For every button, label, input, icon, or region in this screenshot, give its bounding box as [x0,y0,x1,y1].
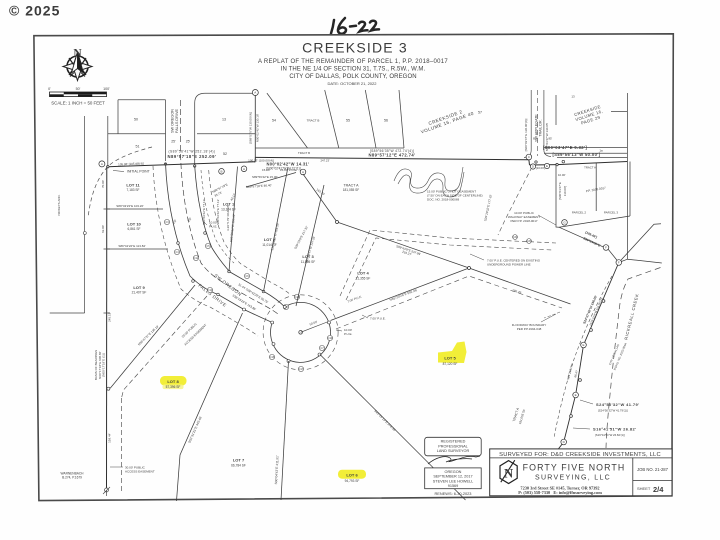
svg-text:87,120 SF: 87,120 SF [443,362,458,366]
svg-text:S16°41'51"W 26.82': S16°41'51"W 26.82' [593,427,637,432]
svg-text:TRACT A: TRACT A [584,166,596,170]
svg-text:13: 13 [222,118,226,122]
svg-text:85': 85' [549,137,553,141]
svg-text:LOT 1: LOT 1 [223,202,235,207]
svg-text:C13: C13 [208,288,213,292]
svg-text:S24°50'32"W 41.79': S24°50'32"W 41.79' [596,402,640,407]
svg-text:[10.00']: [10.00'] [536,166,545,170]
svg-text:E: E [575,393,577,397]
svg-text:LOT 7: LOT 7 [233,458,245,463]
svg-text:S89°56'42"E 15.00': S89°56'42"E 15.00' [252,175,278,179]
svg-text:S89°43'23"E 103.20': S89°43'23"E 103.20' [116,204,144,208]
svg-text:A: A [302,170,304,174]
svg-text:NICKEYS ADD.: NICKEYS ADD. [57,194,61,215]
svg-text:F: F [618,261,620,265]
svg-text:54: 54 [272,119,276,123]
svg-text:57,396 SF: 57,396 SF [166,385,181,389]
svg-text:REGISTERED: REGISTERED [441,440,466,444]
svg-text:159.44': 159.44' [108,433,112,443]
svg-text:LOT 3: LOT 3 [302,254,314,259]
svg-text:LOT 10: LOT 10 [127,222,141,227]
svg-text:[S89°57'6"W 130.00'(4)]: [S89°57'6"W 130.00'(4)] [249,112,253,144]
svg-text:LOT 2: LOT 2 [264,237,276,242]
svg-text:CITY OF DALLAS, POLK COUNTY, O: CITY OF DALLAS, POLK COUNTY, OREGON [289,74,416,80]
svg-text:21,355 SF: 21,355 SF [356,277,371,281]
svg-text:57: 57 [478,111,482,115]
svg-text:6,861 SF: 6,861 SF [128,227,141,231]
svg-text:2/4: 2/4 [653,485,664,494]
svg-text:P.U.E.: P.U.E. [209,225,217,229]
svg-text:C33: C33 [527,240,532,243]
svg-text:PER P.P.1994-048: PER P.P.1994-048 [517,327,542,331]
svg-text:LAND SURVEYOR: LAND SURVEYOR [437,449,470,453]
svg-text:C12: C12 [194,256,199,260]
svg-text:C14: C14 [295,295,300,299]
svg-text:7,183 SF: 7,183 SF [127,188,140,192]
svg-text:N: N [504,467,513,481]
svg-text:56: 56 [384,119,388,123]
svg-text:C6: C6 [245,274,249,278]
svg-text:[S24°50'32"W 41.79'(1)]: [S24°50'32"W 41.79'(1)] [598,409,628,413]
svg-text:PARCEL 3: PARCEL 3 [604,211,619,215]
svg-text:25': 25' [171,140,176,144]
svg-text:94,793 SF: 94,793 SF [345,479,360,483]
svg-text:TRACT B: TRACT B [307,119,320,123]
svg-text:25': 25' [186,140,191,144]
svg-text:15.06': 15.06' [262,168,271,172]
svg-text:SURVEYED FOR: D&D CREEKSIDE I: SURVEYED FOR: D&D CREEKSIDE INVESTMENTS,… [499,452,661,458]
svg-text:63.00': 63.00' [101,225,105,234]
svg-text:85': 85' [533,137,537,141]
svg-text:UNDERGROUND POWER LINE: UNDERGROUND POWER LINE [487,263,531,267]
svg-text:PROFESSIONAL: PROFESSIONAL [438,444,468,448]
svg-text:© 2025: © 2025 [9,3,60,19]
svg-text:SURVEYING, LLC: SURVEYING, LLC [535,475,611,482]
svg-text:A REPLAT OF THE REMAINDER OF P: A REPLAT OF THE REMAINDER OF PARCEL 1, P… [258,59,448,65]
svg-text:100': 100' [103,87,110,91]
svg-text:DATE: OCTOBER 21, 2022: DATE: OCTOBER 21, 2022 [328,81,378,86]
svg-text:P: (503) 558-7330 E: info@ff: P: (503) 558-7330 E: info@ffnsurveying.c… [518,490,602,495]
svg-text:STEVEN LEE HOWELL: STEVEN LEE HOWELL [433,479,474,483]
svg-text:C17: C17 [299,367,304,371]
svg-text:P.U.E.: P.U.E. [344,332,352,336]
svg-text:10.00': 10.00' [558,173,566,177]
svg-text:15.00' P.U.E.: 15.00' P.U.E. [280,168,297,172]
svg-text:LOT 9: LOT 9 [133,285,145,290]
svg-text:LOT 8: LOT 8 [167,379,179,384]
svg-text:WARNENBACHB.274, P.1679: WARNENBACHB.274, P.1679 [61,472,85,480]
svg-text:TRACT B: TRACT B [298,151,310,155]
svg-text:50': 50' [76,87,81,91]
svg-text:A: A [243,167,245,171]
svg-text:IN THE NE 1/4 OF SECTION 31, T: IN THE NE 1/4 OF SECTION 31, T.7S., R.5W… [281,67,426,73]
svg-text:7.00' P.U.E.: 7.00' P.U.E. [370,317,386,321]
svg-text:N00°03'47"W 130.05': N00°03'47"W 130.05' [545,122,549,151]
svg-text:JOB NO. 21-287: JOB NO. 21-287 [637,467,669,472]
svg-text:C4: C4 [175,250,179,254]
svg-text:21,407 SF: 21,407 SF [132,291,147,295]
svg-text:FORTY FIVE NORTH: FORTY FIVE NORTH [523,463,626,473]
svg-text:N00°02'42"W 130.18': N00°02'42"W 130.18' [256,113,260,142]
svg-text:N: N [73,48,82,60]
svg-text:[S16°41'51"W 26.82'(1)]: [S16°41'51"W 26.82'(1)] [595,433,625,437]
svg-text:F: F [605,246,607,250]
svg-text:E: E [582,343,584,347]
svg-text:50: 50 [134,118,138,122]
svg-text:91569: 91569 [448,484,459,488]
svg-text:E: E [546,164,548,168]
svg-text:55: 55 [346,119,350,123]
svg-text:51: 51 [136,145,140,149]
svg-text:CREEKSIDE 3: CREEKSIDE 3 [302,40,408,56]
svg-text:(S89°56'41"W 252.18'(4)): (S89°56'41"W 252.18'(4)) [169,150,216,154]
svg-text:247.23': 247.23' [320,159,330,163]
svg-text:INITIAL POINT: INITIAL POINT [127,170,150,174]
svg-text:13: 13 [571,95,575,99]
svg-text:66,784 SF: 66,784 SF [231,464,246,468]
svg-text:LOT 11: LOT 11 [126,183,140,188]
svg-text:PARCEL 2: PARCEL 2 [572,211,587,215]
svg-text:0': 0' [48,87,51,91]
svg-text:C34: C34 [513,236,518,239]
svg-text:245.15': 245.15' [108,312,112,322]
svg-text:A: A [101,162,103,166]
svg-text:[S00°03'47"E 9.32']: [S00°03'47"E 9.32'] [543,145,587,150]
svg-text:C5: C5 [206,244,210,248]
svg-text:BASIS OF BEARINGSN00°17'18"E: BASIS OF BEARINGSN00°17'18"E 608.86'[N00… [94,350,106,380]
svg-text:C7: C7 [320,346,324,350]
svg-text:N89°57'12"E 472.74': N89°57'12"E 472.74' [368,153,415,158]
svg-text:B: B [220,169,222,173]
svg-text:N89°57'18"E 252.09': N89°57'18"E 252.09' [168,154,217,159]
svg-text:[S00°03'47"E 130.00'(4)]: [S00°03'47"E 130.00'(4)] [524,118,528,151]
svg-text:C19: C19 [328,336,333,340]
svg-text:[S00°03'47"E: [S00°03'47"E [558,182,562,200]
svg-text:S89°42'22"E 113.84': S89°42'22"E 113.84' [118,244,146,248]
svg-text:RENEWS: 6-30-2023: RENEWS: 6-30-2023 [435,491,472,496]
svg-text:52: 52 [223,152,227,156]
svg-text:DOC. NO. 2018-000069: DOC. NO. 2018-000069 [427,198,460,202]
svg-text:SEPTEMBER 12, 2017: SEPTEMBER 12, 2017 [433,475,472,479]
svg-text:11,895 SF: 11,895 SF [301,260,316,264]
svg-text:C16: C16 [270,355,275,359]
svg-text:11,014 SF: 11,014 SF [262,243,277,247]
svg-text:SCALE: 1 INCH = 50 FEET: SCALE: 1 INCH = 50 FEET [51,101,105,106]
svg-text:SW OREGONFALLS DRIVE: SW OREGONFALLS DRIVE [171,109,180,134]
svg-text:A: A [254,91,256,95]
svg-text:PER P.P. 2018-0017: PER P.P. 2018-0017 [510,219,537,223]
svg-text:ACCESS EASEMENT: ACCESS EASEMENT [125,470,155,474]
svg-text:13,104 SF: 13,104 SF [221,208,236,212]
svg-text:110.00']: 110.00'] [563,186,567,197]
svg-text:[S89°56'13"W 50.00']: [S89°56'13"W 50.00'] [553,152,601,157]
svg-text:181,055 SF: 181,055 SF [343,188,360,192]
svg-text:SHEET: SHEET [637,486,651,491]
svg-text:70.00': 70.00' [101,180,105,189]
svg-text:TRACT A: TRACT A [343,184,359,188]
svg-text:LOT 6: LOT 6 [346,472,358,477]
svg-text:OREGON: OREGON [445,470,462,474]
svg-text:C3: C3 [165,220,169,224]
svg-text:LOT 5: LOT 5 [444,356,456,361]
